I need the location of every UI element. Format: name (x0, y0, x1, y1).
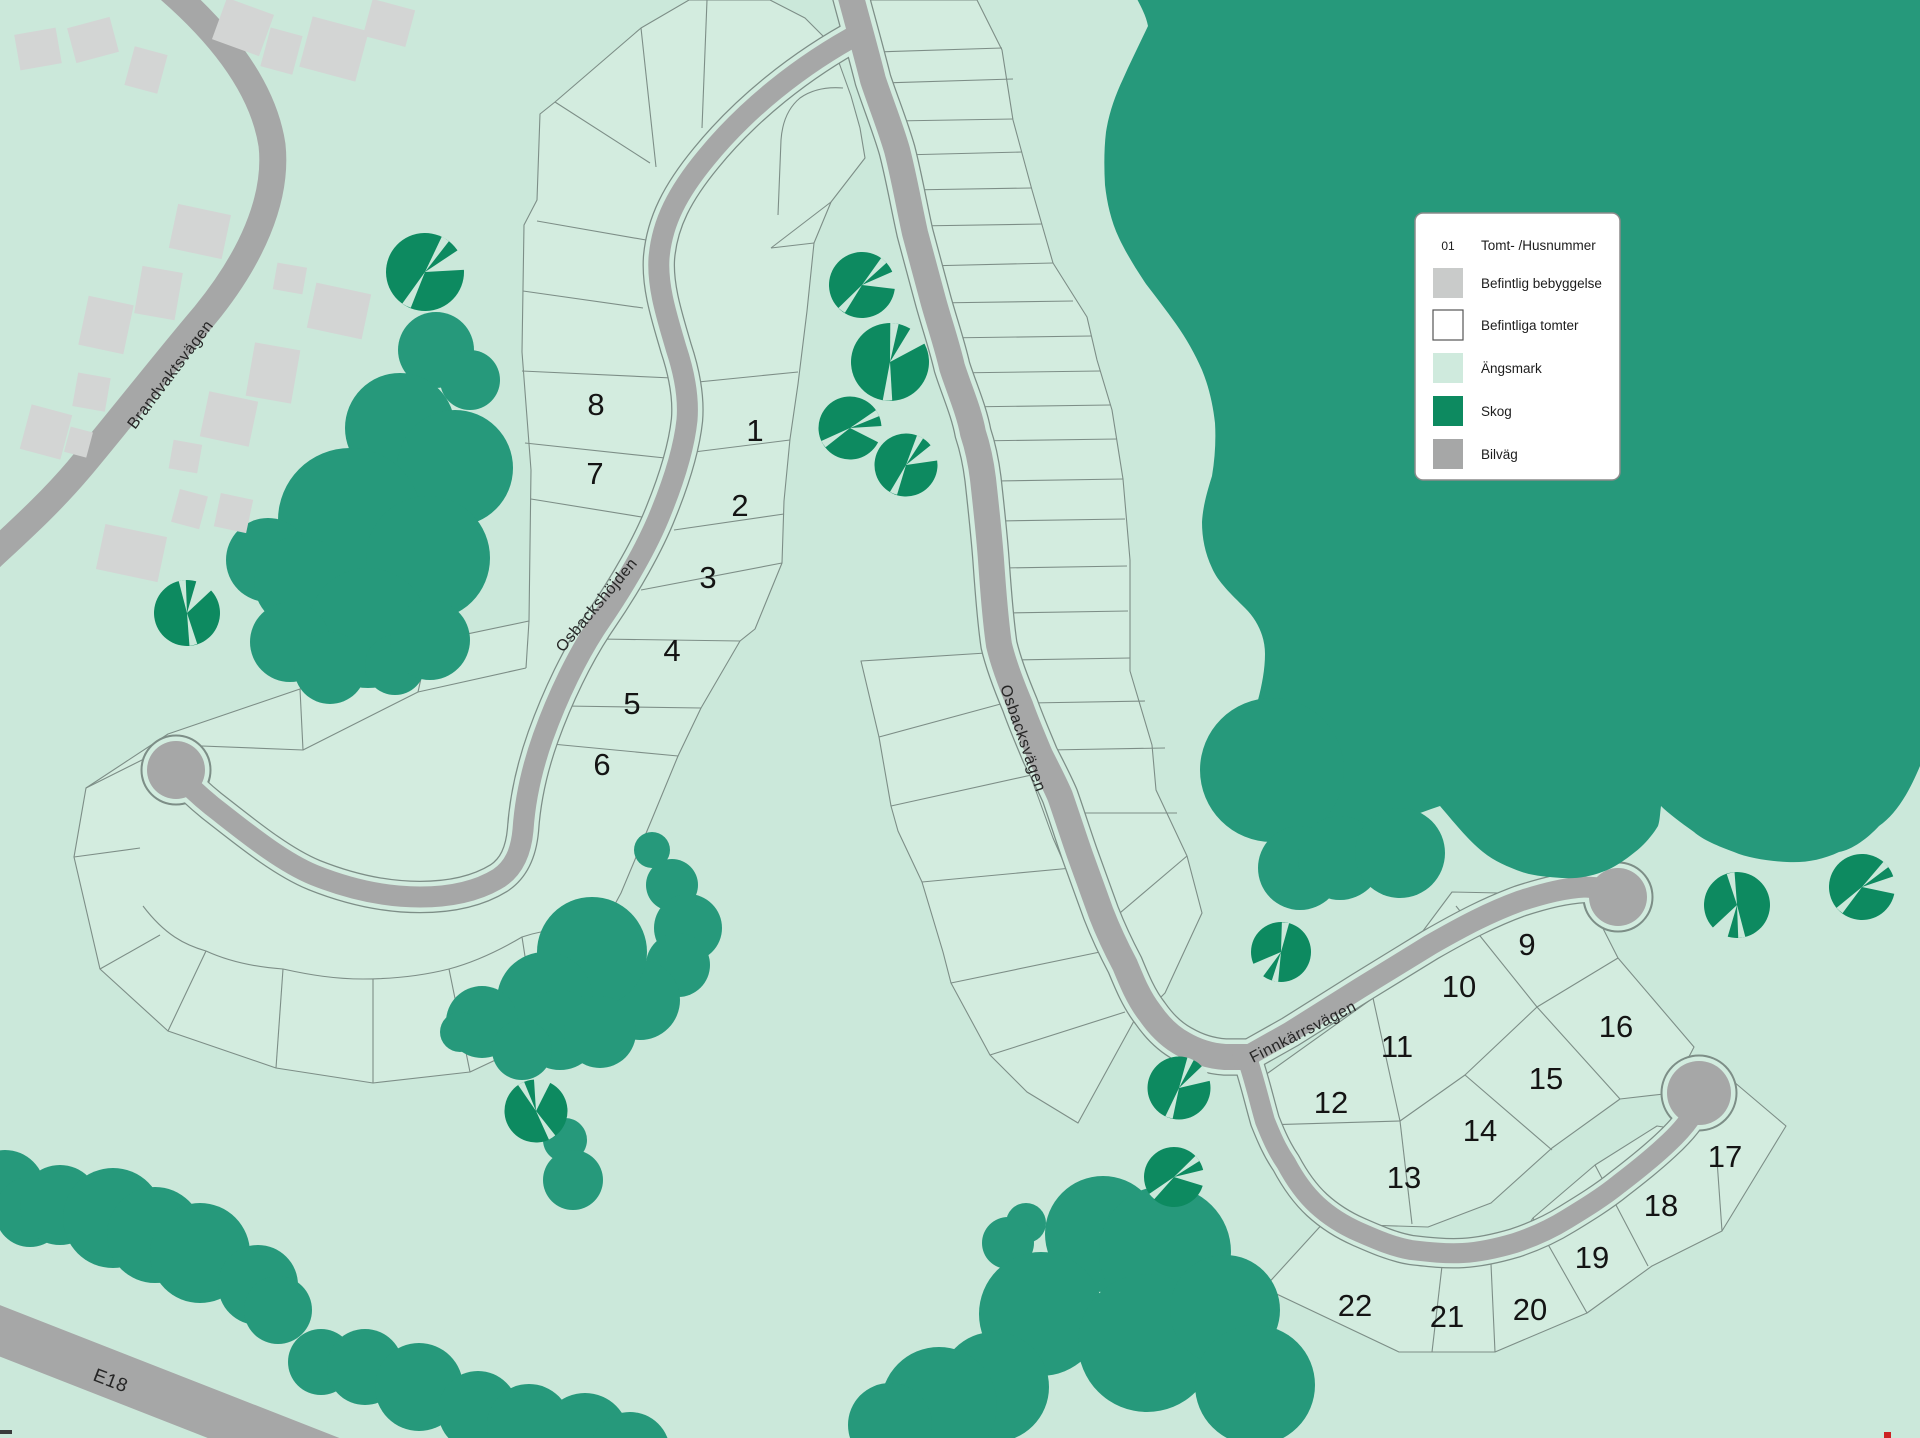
svg-text:16: 16 (1599, 1009, 1633, 1044)
svg-text:7: 7 (586, 456, 603, 491)
svg-text:20: 20 (1513, 1292, 1547, 1327)
svg-text:15: 15 (1529, 1061, 1563, 1096)
svg-text:14: 14 (1463, 1113, 1497, 1148)
svg-text:Ängsmark: Ängsmark (1481, 361, 1542, 376)
svg-text:11: 11 (1381, 1029, 1413, 1064)
svg-text:1: 1 (746, 413, 763, 448)
svg-text:13: 13 (1387, 1160, 1421, 1195)
svg-text:12: 12 (1314, 1085, 1348, 1120)
svg-text:Befintlig bebyggelse: Befintlig bebyggelse (1481, 276, 1602, 291)
svg-text:Skog: Skog (1481, 404, 1512, 419)
svg-text:3: 3 (699, 560, 716, 595)
svg-text:17: 17 (1708, 1139, 1742, 1174)
svg-text:18: 18 (1644, 1188, 1678, 1223)
svg-text:5: 5 (623, 686, 640, 721)
svg-text:10: 10 (1442, 969, 1476, 1004)
svg-text:19: 19 (1575, 1240, 1609, 1275)
svg-text:22: 22 (1338, 1288, 1372, 1323)
svg-text:Bilväg: Bilväg (1481, 447, 1518, 462)
svg-text:Tomt- /Husnummer: Tomt- /Husnummer (1481, 238, 1596, 253)
svg-text:21: 21 (1430, 1299, 1464, 1334)
svg-text:01: 01 (1441, 239, 1455, 253)
svg-text:9: 9 (1518, 927, 1535, 962)
svg-text:2: 2 (731, 488, 748, 523)
svg-text:Befintliga tomter: Befintliga tomter (1481, 318, 1579, 333)
svg-text:4: 4 (663, 633, 680, 668)
svg-text:8: 8 (587, 387, 604, 422)
svg-text:6: 6 (593, 747, 610, 782)
